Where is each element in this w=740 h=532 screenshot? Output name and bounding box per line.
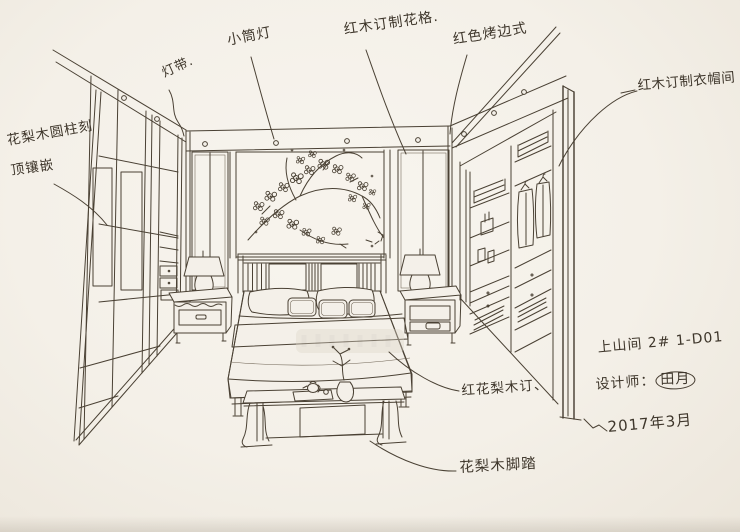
sketch-drawing (0, 0, 740, 532)
designer-name: 田月 (655, 371, 696, 391)
designer-label: 设计师： (595, 373, 656, 393)
leader-lines (54, 50, 637, 471)
nightstand-left (169, 251, 232, 343)
lamp-right-shade (400, 255, 440, 275)
blossom-mural (230, 149, 390, 258)
ceiling-molding (53, 27, 568, 151)
left-shelf-column (160, 232, 178, 300)
lamp-left-shade (184, 257, 224, 276)
walk-in-closet (460, 86, 581, 420)
headboard (238, 254, 386, 293)
sketch-photo: 花梨木圆柱刻 顶镶嵌 灯带. 小筒灯 红木订制花格. 红色烤边式 红木订制衣帽间… (0, 0, 740, 532)
hanging-clothes (518, 174, 551, 248)
bench-lattice-panel (300, 405, 365, 437)
carved-floral-panels (93, 168, 142, 290)
